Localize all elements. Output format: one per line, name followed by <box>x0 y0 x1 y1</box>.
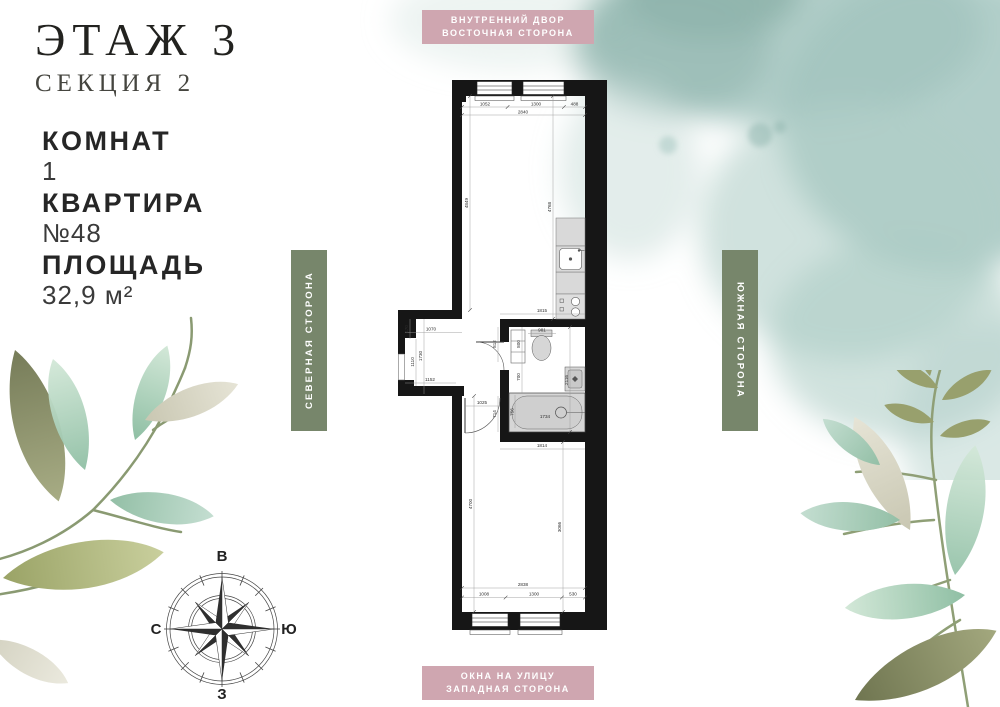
dimension-label: 2116 <box>564 375 569 385</box>
dimension-label: 530 <box>569 592 577 597</box>
dimension-label: 800 <box>516 340 521 348</box>
floor-title: ЭТАЖ 3 <box>35 16 242 64</box>
dimension-label: 1070 <box>426 327 437 332</box>
stove <box>556 294 585 319</box>
dimension-label: 2840 <box>518 109 529 114</box>
apartment-label: КВАРТИРА <box>42 188 206 218</box>
dimension-label: 4768 <box>547 201 552 212</box>
apartment-value: №48 <box>42 218 206 248</box>
dimension-label: 756 <box>510 408 515 416</box>
badge-south-label: ЮЖНАЯ СТОРОНА <box>735 282 746 399</box>
dimension-label: 3066 <box>557 521 562 532</box>
dimension-label: 714 <box>492 410 497 418</box>
area-value: 32,9 м² <box>42 280 206 310</box>
compass-south-label: Ю <box>281 621 296 638</box>
title-block: ЭТАЖ 3 СЕКЦИЯ 2 <box>35 16 242 98</box>
dimension-label: 1025 <box>477 400 488 405</box>
badge-east-line1: ВНУТРЕННИЙ ДВОР <box>422 14 594 27</box>
dimension-label: 1734 <box>540 414 551 419</box>
badge-north-side: СЕВЕРНАЯ СТОРОНА <box>291 250 327 431</box>
dimension-label: 1152 <box>425 377 435 382</box>
leaf-branch-right <box>760 370 1000 707</box>
section-subtitle: СЕКЦИЯ 2 <box>35 70 242 98</box>
badge-west-side: ОКНА НА УЛИЦУ ЗАПАДНАЯ СТОРОНА <box>422 666 594 700</box>
rooms-label: КОМНАТ <box>42 126 206 156</box>
compass-east-label: В <box>217 548 228 565</box>
walls <box>398 80 607 630</box>
area-label: ПЛОЩАДЬ <box>42 250 206 280</box>
dimension-label: 470 <box>404 325 409 333</box>
door-swing-bathroom <box>476 342 504 370</box>
dimension-lines <box>405 96 585 612</box>
badge-south-side: ЮЖНАЯ СТОРОНА <box>722 250 758 431</box>
dimension-label: 1300 <box>529 592 540 597</box>
dimension-label: 2838 <box>518 582 529 587</box>
dimension-label: 981 <box>538 328 546 333</box>
dimension-labels: 1052130048828404849476818159818007002116… <box>404 101 579 596</box>
compass-rose-icon: В Ю З С <box>137 541 307 707</box>
toilet <box>531 330 552 361</box>
compass-west-label: З <box>217 686 226 703</box>
bathtub <box>509 393 585 432</box>
dimension-label: 1814 <box>537 443 548 448</box>
floor-plan: 1052130048828404849476818159818007002116… <box>398 80 610 640</box>
badge-west-line2: ЗАПАДНАЯ СТОРОНА <box>422 683 594 696</box>
badge-north-label: СЕВЕРНАЯ СТОРОНА <box>304 271 315 409</box>
dimension-label: 1300 <box>531 101 542 106</box>
dimension-label: 4849 <box>464 197 469 208</box>
compass-north-label: С <box>151 621 162 638</box>
dimension-label: 1008 <box>479 592 490 597</box>
dimension-label: 700 <box>516 373 521 381</box>
dimension-label: 1052 <box>480 101 491 106</box>
dimension-label: 488 <box>571 101 579 106</box>
dimension-label: 1110 <box>410 357 415 367</box>
kitchen-sink <box>556 246 585 272</box>
badge-east-line2: ВОСТОЧНАЯ СТОРОНА <box>422 27 594 40</box>
badge-west-line1: ОКНА НА УЛИЦУ <box>422 670 594 683</box>
badge-east-side: ВНУТРЕННИЙ ДВОР ВОСТОЧНАЯ СТОРОНА <box>422 10 594 44</box>
dimension-label: 1815 <box>537 308 548 313</box>
apartment-info: КОМНАТ 1 КВАРТИРА №48 ПЛОЩАДЬ 32,9 м² <box>42 126 206 312</box>
dimension-label: 4700 <box>468 498 473 509</box>
dimension-label: 1730 <box>418 350 423 361</box>
page: ЭТАЖ 3 СЕКЦИЯ 2 КОМНАТ 1 КВАРТИРА №48 ПЛ… <box>0 0 1000 707</box>
wall-recess <box>398 354 404 380</box>
rooms-value: 1 <box>42 156 206 186</box>
dimension-label: 812 <box>492 340 497 348</box>
